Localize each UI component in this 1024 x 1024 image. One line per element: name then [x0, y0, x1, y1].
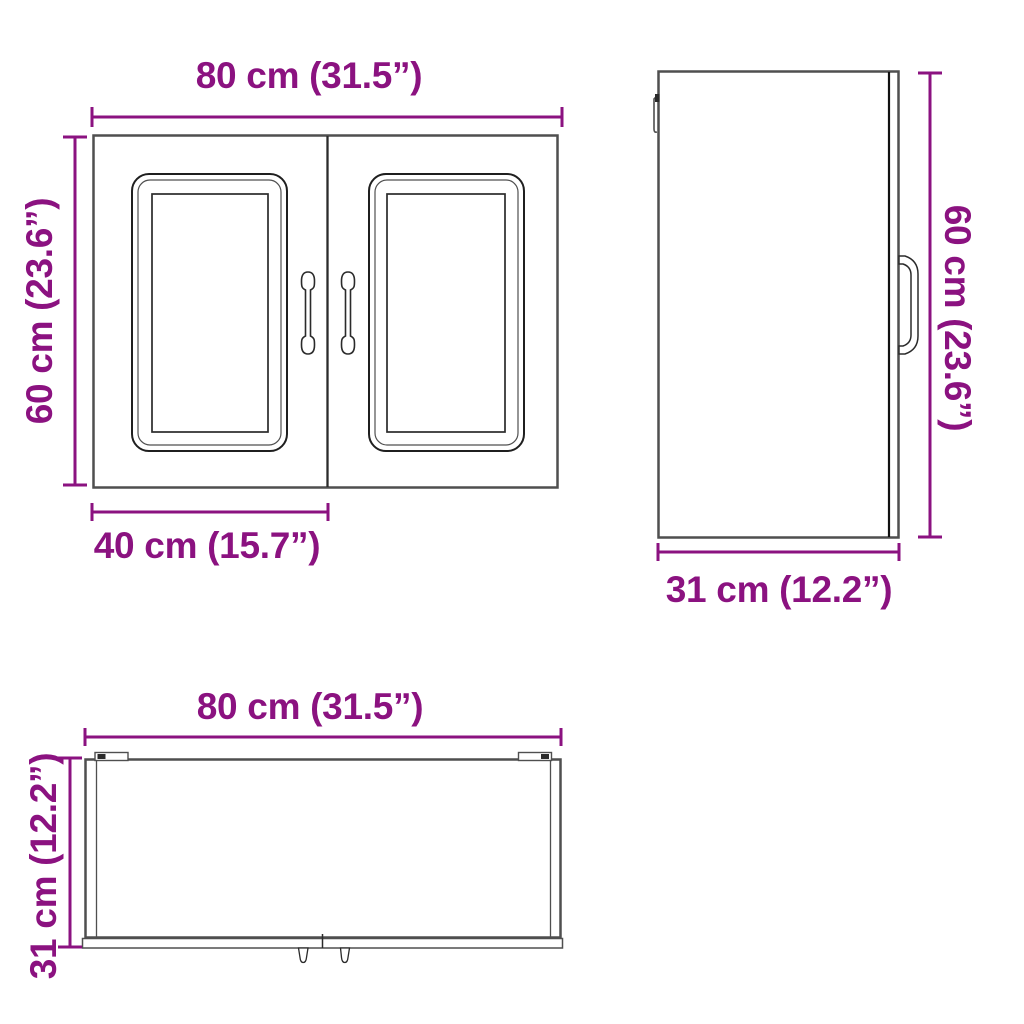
top-width-dimension-label: 80 cm (31.5”) — [197, 686, 423, 728]
front-view-drawing — [94, 136, 558, 488]
side-depth-dimension-line — [658, 543, 899, 561]
wall-mount-hook-pin — [655, 94, 660, 102]
cabinet-dimension-diagram: 80 cm (31.5”) 60 cm (23.6”) 40 cm (15.7”… — [0, 0, 1024, 1024]
top-depth-dimension-label: 31 cm (12.2”) — [23, 753, 65, 979]
front-height-dimension-label: 60 cm (23.6”) — [19, 198, 61, 424]
front-door-width-dimension-line — [92, 503, 328, 521]
front-width-dimension-line — [92, 107, 562, 127]
front-height-dimension-line — [63, 137, 87, 485]
side-view-drawing — [654, 72, 918, 538]
side-cabinet-body — [659, 72, 899, 538]
front-cabinet-body — [94, 136, 558, 488]
side-height-dimension-label: 60 cm (23.6”) — [936, 205, 978, 431]
top-width-dimension-line — [85, 728, 561, 746]
top-view-drawing — [83, 753, 563, 963]
top-right-knob — [341, 948, 350, 963]
top-cabinet-body — [86, 760, 561, 938]
right-mount-bracket-pin — [541, 754, 549, 759]
cabinet-line-art — [0, 0, 1024, 1024]
front-door-width-dimension-label: 40 cm (15.7”) — [94, 525, 320, 567]
top-left-knob — [299, 948, 309, 963]
left-mount-bracket-pin — [98, 754, 106, 759]
side-door-handle — [899, 256, 918, 354]
side-depth-dimension-label: 31 cm (12.2”) — [666, 569, 892, 611]
front-width-dimension-label: 80 cm (31.5”) — [196, 55, 422, 97]
